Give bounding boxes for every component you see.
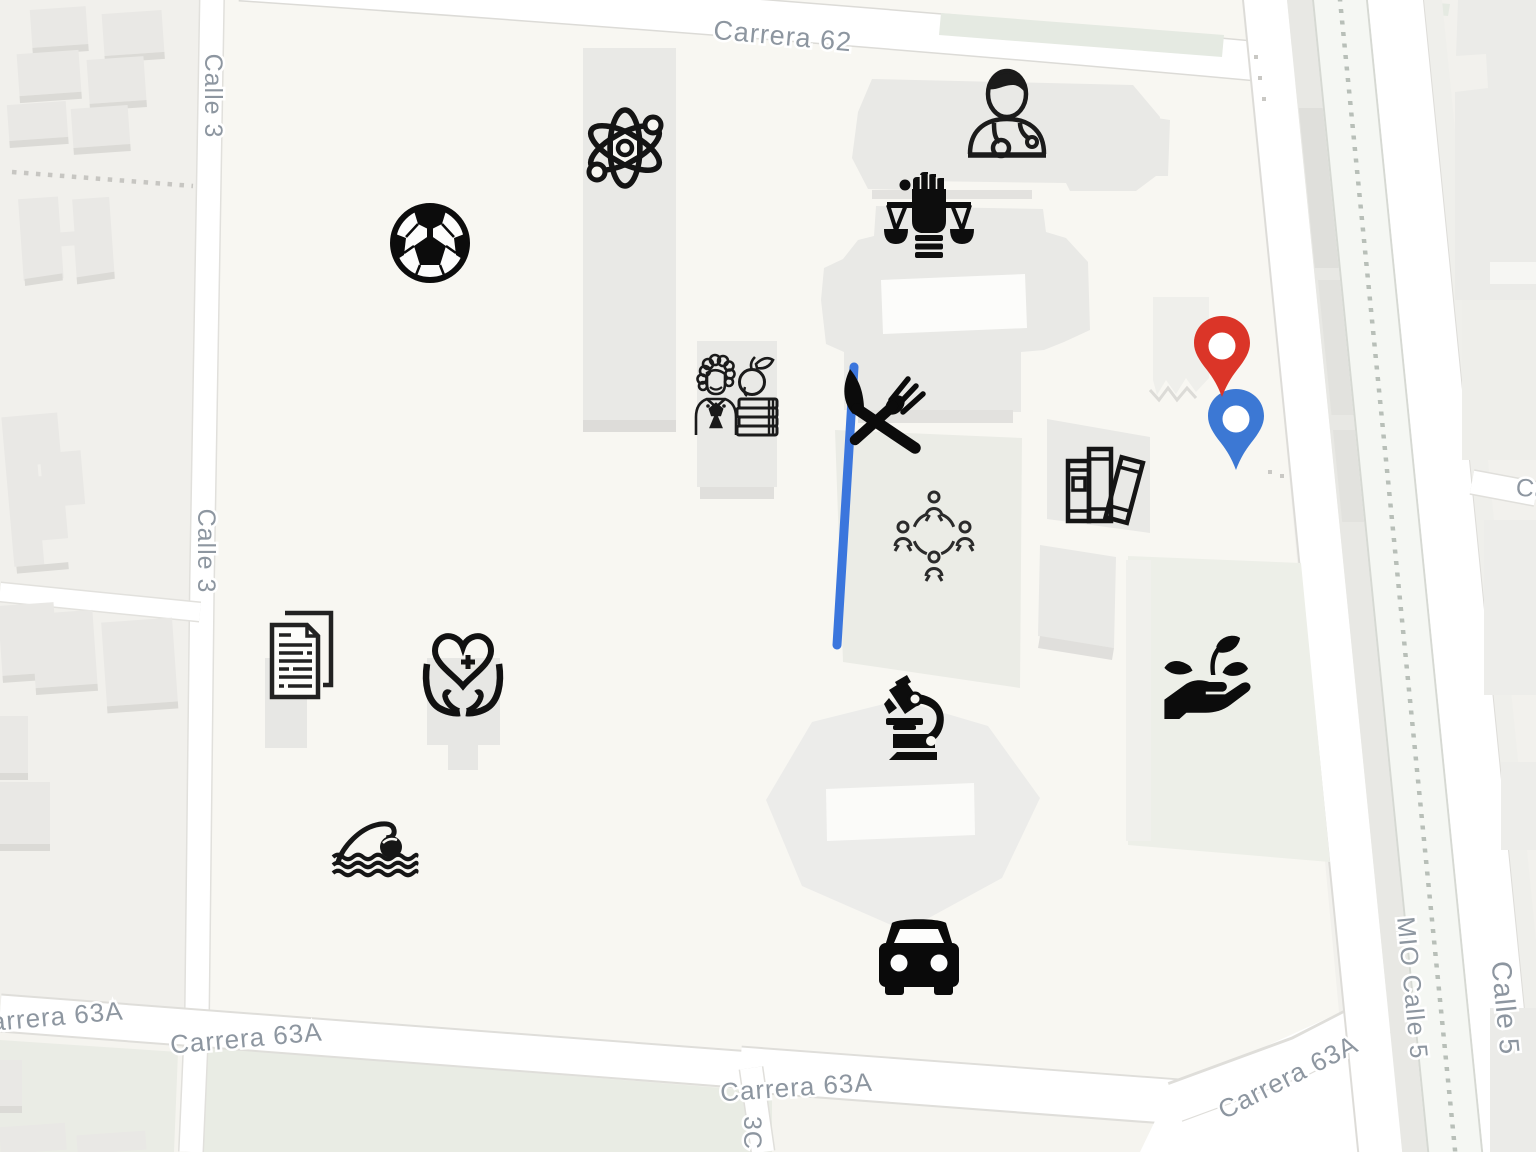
svg-text:3C: 3C: [738, 1116, 766, 1150]
svg-text:Calle 3: Calle 3: [199, 54, 227, 139]
svg-text:Ca: Ca: [1514, 473, 1536, 504]
